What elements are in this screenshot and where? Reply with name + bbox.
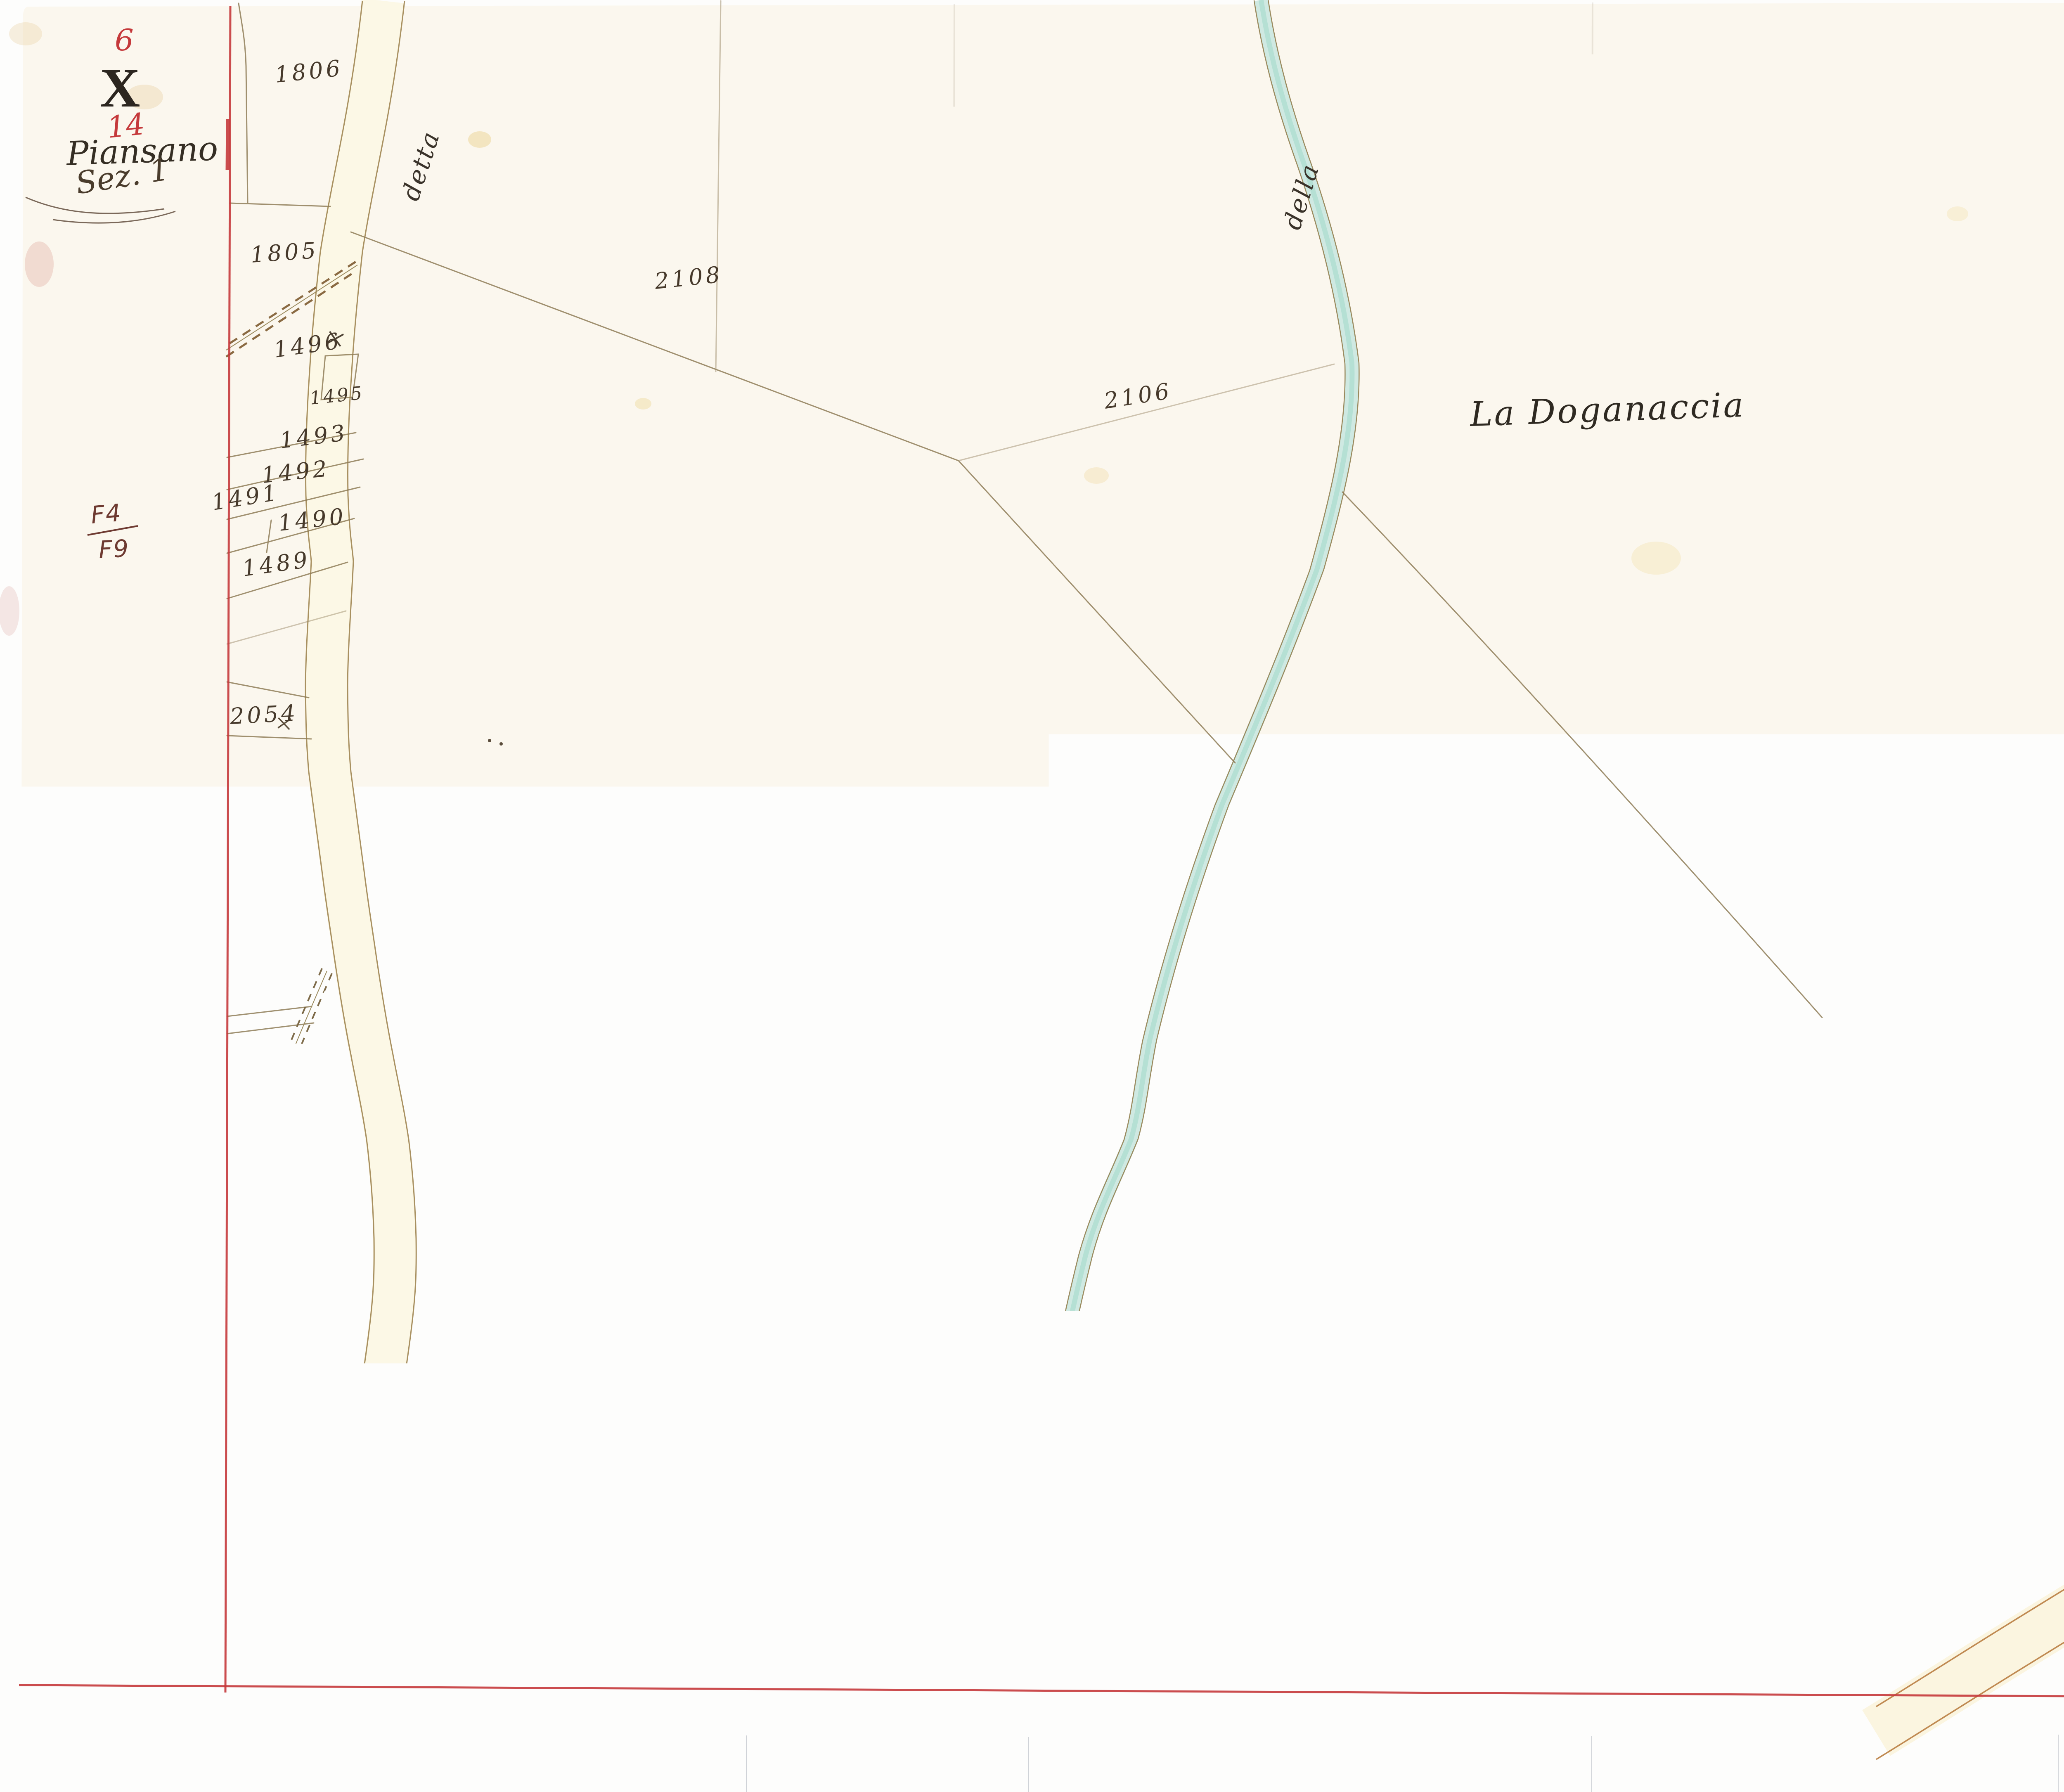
reference-upper: F4 xyxy=(90,499,123,529)
map-canvas: 6 X 14 Piansano Sez. 1 F4 F9 detta Dogan… xyxy=(0,0,2064,1792)
reference-lower: F9 xyxy=(98,534,130,564)
parcel-label: 2128 xyxy=(258,1649,328,1680)
parcel-label: 2054 xyxy=(229,700,299,729)
scanner-edge-lines xyxy=(746,1735,2058,1792)
neat-line-vertical-thick-stub xyxy=(227,119,228,170)
scanned-cadastral-map: 6 X 14 Piansano Sez. 1 F4 F9 detta Dogan… xyxy=(0,0,2064,1792)
ink-dot xyxy=(499,742,503,746)
ink-dot xyxy=(488,739,491,742)
parcel-label: 1805 xyxy=(250,237,320,268)
folio-number: 6 xyxy=(115,23,134,57)
